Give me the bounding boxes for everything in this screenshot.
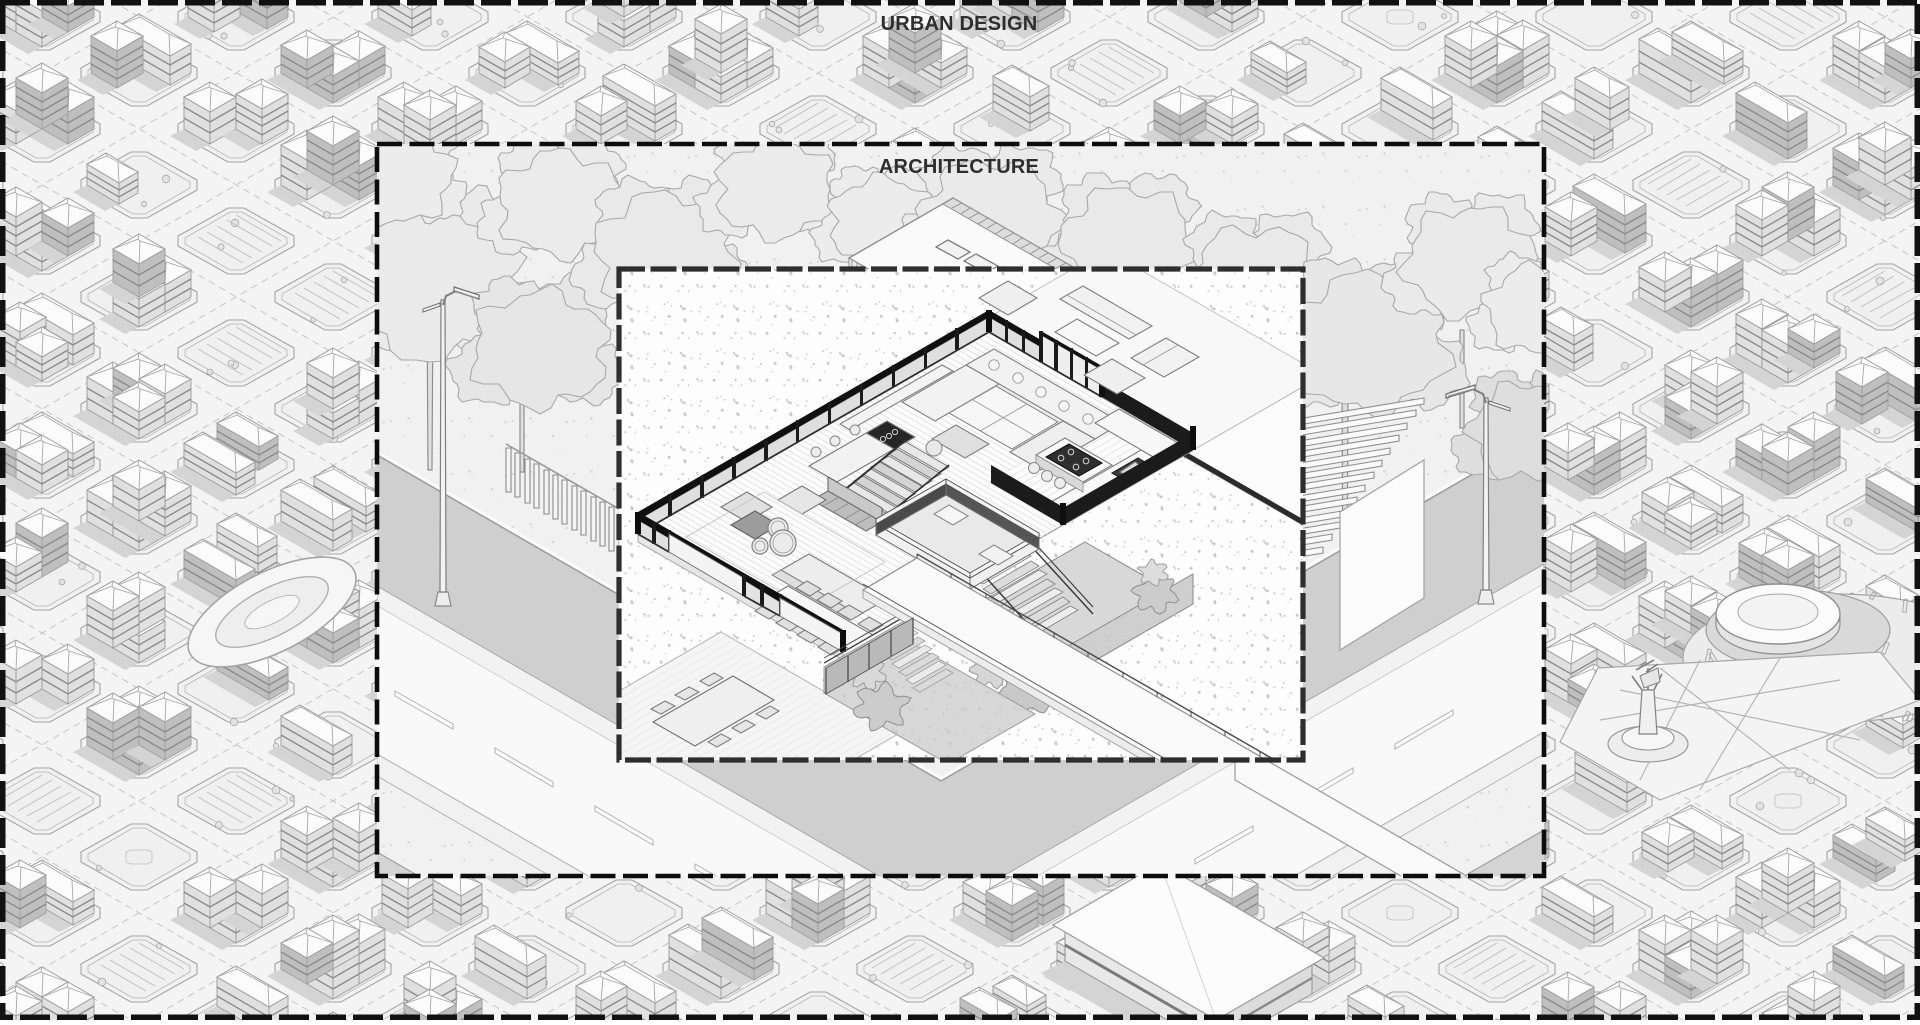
svg-text:URBAN DESIGN: URBAN DESIGN bbox=[881, 13, 1038, 35]
svg-text:ARCHITECTURE: ARCHITECTURE bbox=[879, 156, 1039, 178]
